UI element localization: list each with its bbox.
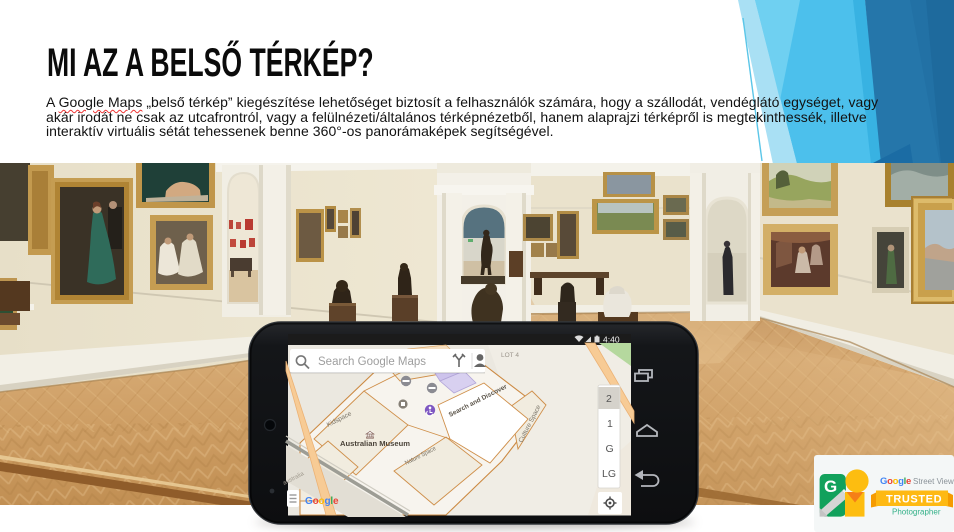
svg-text:Search Google Maps: Search Google Maps <box>318 356 426 368</box>
svg-text:TRUSTED: TRUSTED <box>886 494 942 506</box>
svg-text:1: 1 <box>607 418 613 430</box>
svg-text:G: G <box>606 443 614 455</box>
svg-text:LOT 4: LOT 4 <box>501 352 519 359</box>
svg-text:LG: LG <box>602 468 616 480</box>
svg-text:Australian Museum: Australian Museum <box>340 439 410 448</box>
svg-text:Google: Google <box>880 476 911 487</box>
svg-text:Street View: Street View <box>913 477 954 486</box>
svg-text:2: 2 <box>606 393 612 405</box>
svg-text:Photographer: Photographer <box>892 508 941 517</box>
svg-text:Google: Google <box>305 496 339 507</box>
svg-text:G: G <box>824 477 837 496</box>
